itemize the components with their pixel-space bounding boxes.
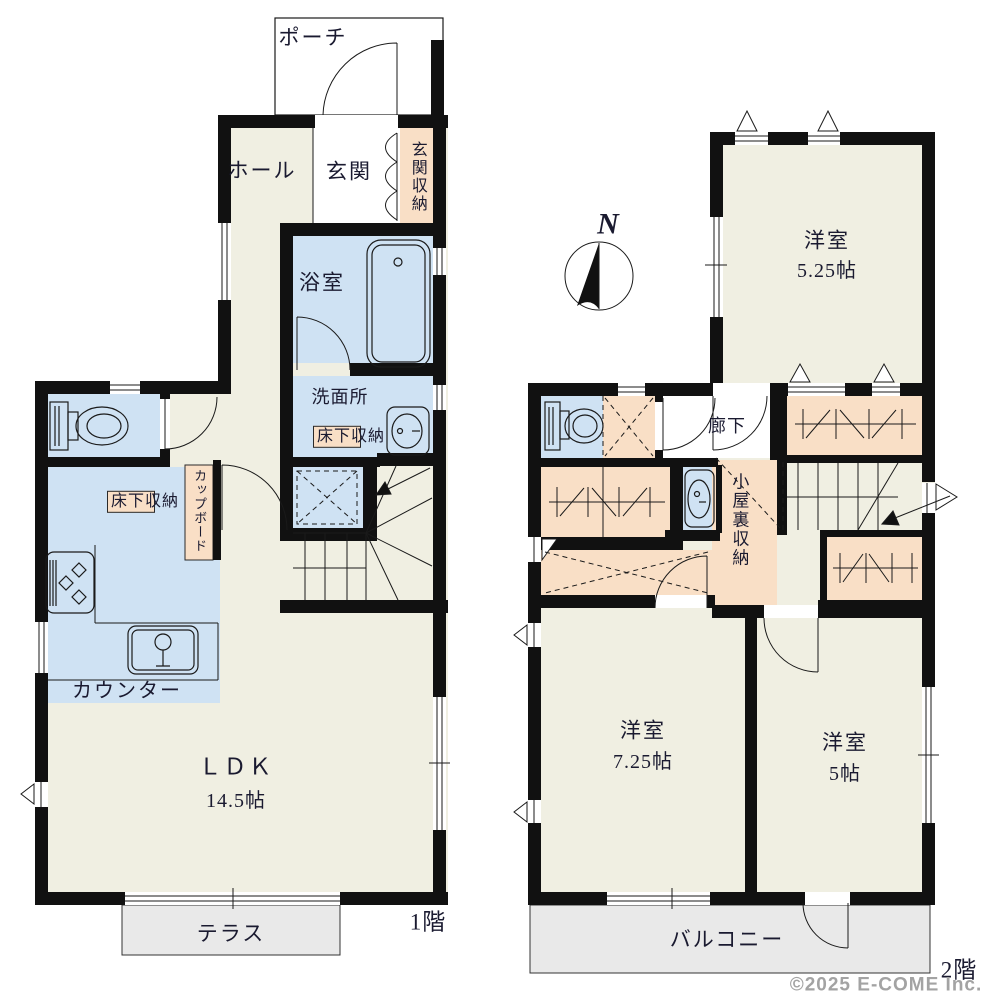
balcony-label: バルコニー xyxy=(670,928,785,951)
attic-storage-label: 小屋裏収納 xyxy=(729,473,748,568)
floor-plan: ポーチ ホール 玄関 玄関収納 浴室 洗面所 床下収納 床下収納 カップボード … xyxy=(0,0,1000,1000)
bedroom-b-label: 洋室 xyxy=(620,719,666,742)
bedroom-a-label: 洋室 xyxy=(804,229,850,252)
hall-label: ホール xyxy=(228,159,297,182)
bathroom-label: 浴室 xyxy=(299,271,345,294)
ldk-label: ＬＤＫ xyxy=(199,754,274,779)
bedroom-a-size-label: 5.25帖 xyxy=(797,260,857,282)
kitchen-underfloor-storage-label: 床下収納 xyxy=(107,491,155,513)
bedroom-c-size-label: 5帖 xyxy=(829,763,861,785)
floor1-label: 1階 xyxy=(410,909,447,934)
washroom-underfloor-storage-label: 床下収納 xyxy=(313,426,361,448)
toilet-area xyxy=(48,394,160,457)
hatch-area xyxy=(293,467,363,528)
entrance-label: 玄関 xyxy=(326,160,372,183)
watermark: ©2025 E-COME Inc. xyxy=(790,976,983,997)
cupboard-label: カップボード xyxy=(192,469,206,553)
north-compass-icon xyxy=(565,242,633,310)
bathroom-area xyxy=(293,236,433,363)
toilet2-area xyxy=(541,396,603,458)
counter-label: カウンター xyxy=(72,680,182,702)
terrace-label: テラス xyxy=(197,922,266,945)
bedroom-b-size-label: 7.25帖 xyxy=(613,751,673,773)
ldk-size-label: 14.5帖 xyxy=(206,790,266,812)
north-label: N xyxy=(597,208,619,241)
washroom-label: 洗面所 xyxy=(312,388,369,408)
porch-label: ポーチ xyxy=(279,26,348,49)
corridor-label: 廊下 xyxy=(708,417,746,437)
entrance-storage-label: 玄関収納 xyxy=(408,141,426,213)
bedroom-c-label: 洋室 xyxy=(822,731,868,754)
